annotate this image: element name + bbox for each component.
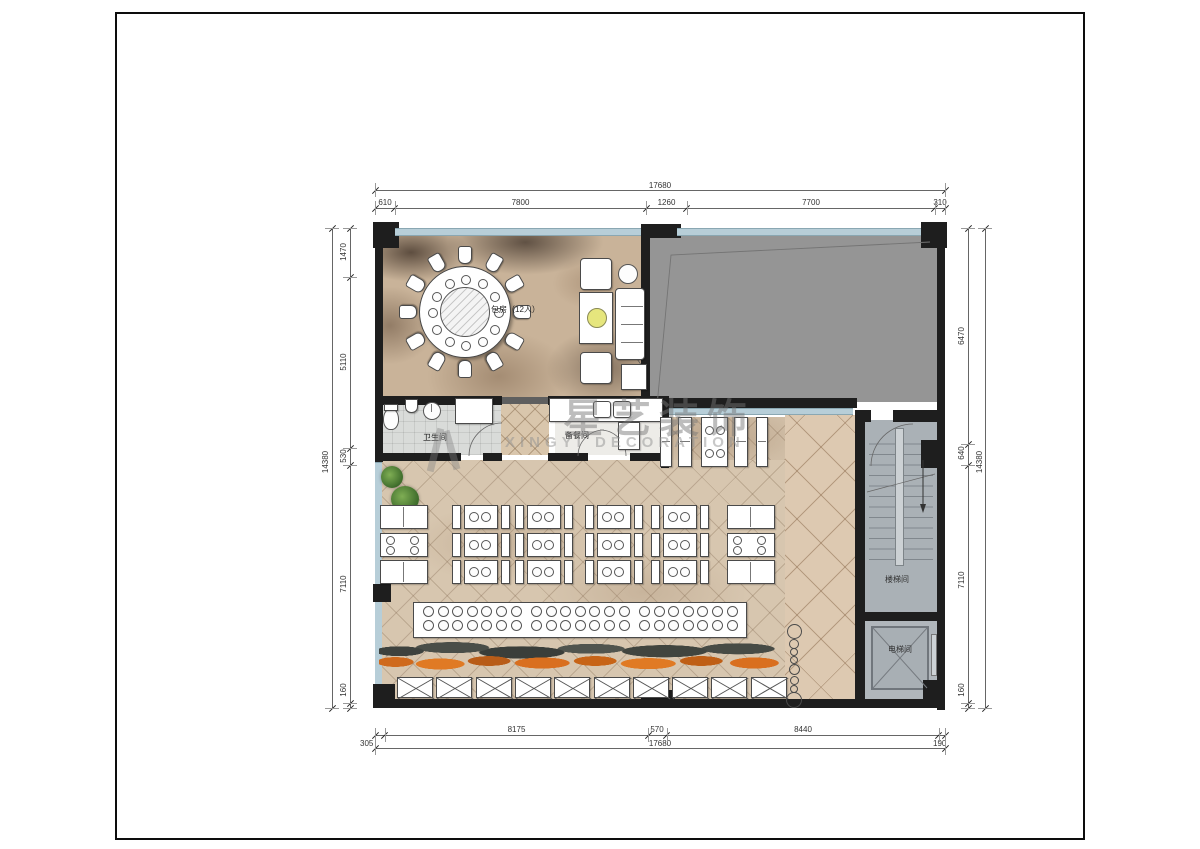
sofa-cushion-line [621,324,643,325]
x-window-panel [436,677,472,698]
bench-divider [680,441,690,442]
dim-extension [325,708,339,709]
sink-left [593,401,611,418]
bar-cover [546,606,557,617]
dim-extension [325,228,339,229]
banquet-chair [399,305,417,319]
pebble-decor [790,648,798,656]
place-setting [481,567,491,577]
place-setting [680,567,690,577]
dim-extension [385,728,386,742]
prep-room-label: 备餐间 [555,430,599,441]
dim-bottom-total: 17680 [375,739,945,749]
booth-bench [727,505,775,529]
floor-plan: 包房（12人） 卫生间 备餐间 楼梯间 电梯间 [375,228,945,708]
place-setting [410,536,419,545]
place-setting [544,567,554,577]
dim-bottom-4: 8440 [667,725,939,735]
dim-top-5: 310 [922,198,958,208]
place-setting [733,546,742,555]
armchair [580,352,612,384]
side-table-round [618,264,638,284]
dining-chair-strip [585,560,594,584]
dim-right-3: 7110 [957,563,967,597]
dining-chair-strip [501,505,510,529]
x-window-panel [672,677,708,698]
armchair [580,258,612,290]
dim-extension [395,201,396,215]
bar-cover [511,620,522,631]
dining-chair-strip [651,533,660,557]
bar-cover [712,620,723,631]
place-setting [602,567,612,577]
place-setting [716,449,725,458]
dim-right-total: 14380 [975,445,985,479]
plant [381,466,403,488]
dim-extension [945,201,946,215]
dining-chair-strip [452,533,461,557]
x-window-panel [476,677,512,698]
prep-counter-l [618,422,640,450]
place-setting [544,512,554,522]
bench-divider [403,562,404,582]
place-setting [481,540,491,550]
dim-extension [343,465,357,466]
dim-extension [667,728,668,742]
dim-line-left-segments [350,228,351,708]
place-setting [432,292,442,302]
bar-cover [511,606,522,617]
pebble-decor [790,676,799,685]
bench-divider [662,441,670,442]
place-setting [757,536,766,545]
place-setting [716,426,725,435]
place-setting [602,512,612,522]
bar-cover [619,620,630,631]
place-setting [614,567,624,577]
place-setting [386,536,395,545]
bench-divider [750,562,751,582]
dining-chair-strip [700,560,709,584]
place-setting [410,546,419,555]
place-setting [614,512,624,522]
bar-cover [438,620,449,631]
wash-basin [423,402,441,420]
bar-cover [531,606,542,617]
place-setting [490,325,500,335]
pebble-decor [786,692,802,708]
x-window-panel [515,677,551,698]
dim-extension [375,728,376,742]
planting-orange-band [379,652,787,672]
place-setting [532,512,542,522]
bar-cover [727,606,738,617]
bar-cover [496,620,507,631]
sink-right [613,401,631,418]
dim-left-4: 7110 [339,567,349,601]
place-setting [668,512,678,522]
place-setting [386,546,395,555]
bathroom-label: 卫生间 [413,432,457,443]
dim-extension [648,728,649,742]
dim-extension [375,741,376,755]
x-window-panel [554,677,590,698]
bar-cover [575,620,586,631]
place-setting [445,279,455,289]
elevator-label: 电梯间 [878,644,922,655]
bar-cover [496,606,507,617]
dim-extension [961,465,975,466]
booth-bench [727,560,775,584]
place-setting [705,426,714,435]
toilet [383,408,399,430]
dim-extension [375,183,376,197]
dim-line-right-segments [968,228,969,708]
dim-bottom-1: 305 [360,739,373,749]
bar-cover [654,620,665,631]
private-room-label: 包房（12人） [491,304,540,315]
dim-extension [375,201,376,215]
place-setting [461,341,471,351]
toilet-tank [384,404,398,411]
place-setting [469,512,479,522]
dim-extension [687,201,688,215]
bar-cover [438,606,449,617]
dim-extension [945,183,946,197]
place-setting [428,308,438,318]
dim-extension [343,277,357,278]
dining-chair-strip [634,533,643,557]
bar-cover [604,620,615,631]
dim-top-total: 17680 [375,181,945,191]
dim-extension [343,448,357,449]
bench-divider [750,507,751,527]
place-setting [461,275,471,285]
place-setting [469,540,479,550]
dining-chair-strip [515,560,524,584]
pebble-decor [790,656,798,664]
sofa-cushion-line [621,306,643,307]
bar-cover [575,606,586,617]
place-setting [481,512,491,522]
place-setting [705,449,714,458]
place-setting [668,540,678,550]
place-setting [532,567,542,577]
bar-cover [727,620,738,631]
dim-bottom-2: 8175 [385,725,648,735]
drawing-sheet: 包房（12人） 卫生间 备餐间 楼梯间 电梯间 17680 610 7800 1… [0,0,1200,849]
dim-extension [961,444,975,445]
banquet-chair [458,360,472,378]
bench-divider [758,441,766,442]
dining-chair-strip [564,560,573,584]
dim-extension [961,708,975,709]
dim-extension [978,708,992,709]
place-setting [757,546,766,555]
booth-bench [380,505,428,529]
dim-extension [343,228,357,229]
pebble-decor [787,624,802,639]
dim-left-1: 1470 [339,235,349,269]
dining-chair-strip [700,533,709,557]
dining-chair-strip [634,560,643,584]
bench-divider [736,441,746,442]
place-setting [680,540,690,550]
bar-cover [531,620,542,631]
x-window-panel [751,677,787,698]
dining-chair-strip [651,560,660,584]
dining-chair-strip [515,505,524,529]
place-setting [544,540,554,550]
dim-extension [935,201,936,215]
place-setting [478,337,488,347]
dining-chair-strip [452,560,461,584]
corner-table [621,364,647,390]
dim-extension [343,703,357,704]
bar-cover [423,606,434,617]
place-setting [668,567,678,577]
bar-cover [683,606,694,617]
place-setting [602,540,612,550]
dining-chair-strip [515,533,524,557]
x-window-panel [594,677,630,698]
place-setting [532,540,542,550]
dim-extension [961,703,975,704]
dim-left-2: 5110 [339,345,349,379]
dim-extension [961,228,975,229]
dim-line-left-total [332,228,333,708]
booth-bench [734,417,748,467]
dim-top-3: 1260 [646,198,687,208]
dining-chair-strip [564,533,573,557]
urinal [405,399,418,413]
mop-sink-box [455,398,493,424]
booth-bench [380,560,428,584]
bar-cover [683,620,694,631]
x-window-panel [397,677,433,698]
dim-extension [945,728,946,742]
lazy-susan [440,287,490,337]
sofa-cushion-line [621,342,643,343]
place-setting [445,337,455,347]
pebble-decor [789,664,800,675]
dining-chair-strip [585,533,594,557]
place-setting [490,292,500,302]
dim-extension [646,201,647,215]
bar-cover [712,606,723,617]
place-setting [614,540,624,550]
dim-right-1: 6470 [957,319,967,353]
bar-cover [467,606,478,617]
stairwell-label: 楼梯间 [875,574,919,585]
dim-line-top-segments [375,208,945,209]
x-window-panel [633,677,669,698]
basin-tap [431,404,432,412]
bar-cover [423,620,434,631]
bar-cover [619,606,630,617]
dining-chair-strip [501,533,510,557]
x-window-panel [711,677,747,698]
dim-extension [978,228,992,229]
place-setting [432,325,442,335]
booth-bench [660,417,672,467]
bar-cover [639,606,650,617]
bar-cover [639,620,650,631]
dining-chair-strip [585,505,594,529]
dining-chair-strip [452,505,461,529]
booth-table [701,417,728,467]
dim-top-2: 7800 [395,198,646,208]
dim-line-bottom-segments [375,735,945,736]
dim-top-4: 7700 [687,198,935,208]
booth-bench [678,417,692,467]
bar-cover [546,620,557,631]
dining-chair-strip [634,505,643,529]
dim-line-right-total [985,228,986,708]
bench-divider [403,507,404,527]
bar-cover [467,620,478,631]
bar-cover [604,606,615,617]
place-setting [680,512,690,522]
place-setting [469,567,479,577]
dining-chair-strip [651,505,660,529]
booth-bench [756,417,768,467]
table-decor [587,308,607,328]
place-setting [478,279,488,289]
dim-extension [939,728,940,742]
dining-chair-strip [564,505,573,529]
dining-chair-strip [501,560,510,584]
dim-left-total: 14380 [321,445,331,479]
bar-cover [654,606,665,617]
dim-extension [343,708,357,709]
banquet-chair [458,246,472,264]
dim-extension [945,741,946,755]
place-setting [733,536,742,545]
dining-chair-strip [700,505,709,529]
